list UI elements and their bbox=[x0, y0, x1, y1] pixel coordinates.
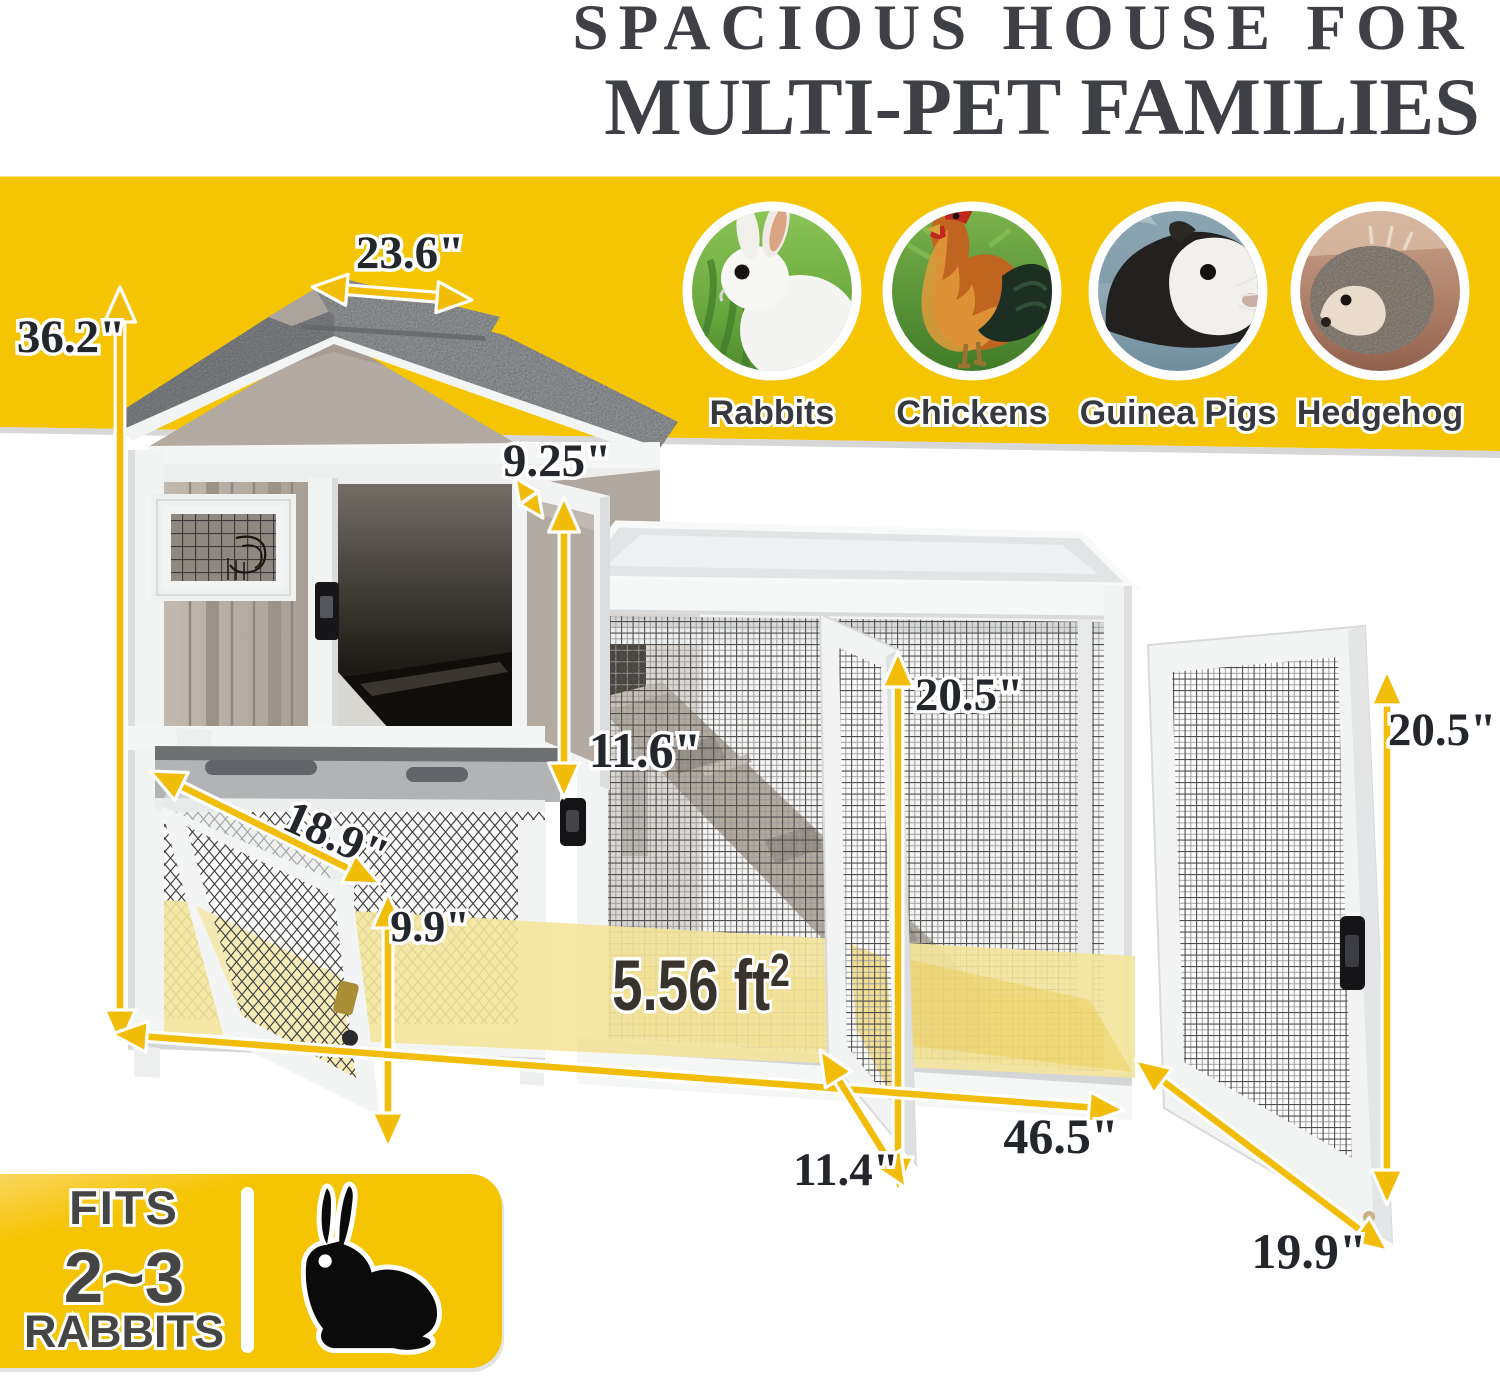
svg-text:46.5": 46.5" bbox=[1003, 1108, 1118, 1164]
svg-text:9.25": 9.25" bbox=[503, 435, 611, 487]
svg-text:11.6": 11.6" bbox=[589, 722, 702, 778]
svg-text:23.6": 23.6" bbox=[356, 227, 464, 279]
svg-text:SPACIOUS HOUSE FOR: SPACIOUS HOUSE FOR bbox=[572, 0, 1473, 64]
svg-text:RABBITS: RABBITS bbox=[24, 1306, 224, 1357]
svg-text:9.9": 9.9" bbox=[390, 902, 469, 951]
svg-text:20.5": 20.5" bbox=[915, 669, 1023, 721]
svg-text:Chickens: Chickens bbox=[896, 394, 1047, 432]
svg-text:Guinea Pigs: Guinea Pigs bbox=[1080, 394, 1277, 432]
svg-text:5.56 ft2: 5.56 ft2 bbox=[612, 945, 790, 1026]
svg-text:11.4": 11.4" bbox=[793, 1144, 899, 1196]
svg-text:MULTI-PET FAMILIES: MULTI-PET FAMILIES bbox=[604, 61, 1480, 152]
svg-text:Hedgehog: Hedgehog bbox=[1297, 394, 1463, 432]
svg-text:Rabbits: Rabbits bbox=[710, 394, 835, 432]
svg-text:20.5": 20.5" bbox=[1388, 704, 1496, 756]
svg-text:FITS: FITS bbox=[69, 1181, 179, 1234]
svg-text:36.2": 36.2" bbox=[17, 311, 125, 363]
svg-text:19.9": 19.9" bbox=[1251, 1223, 1366, 1279]
